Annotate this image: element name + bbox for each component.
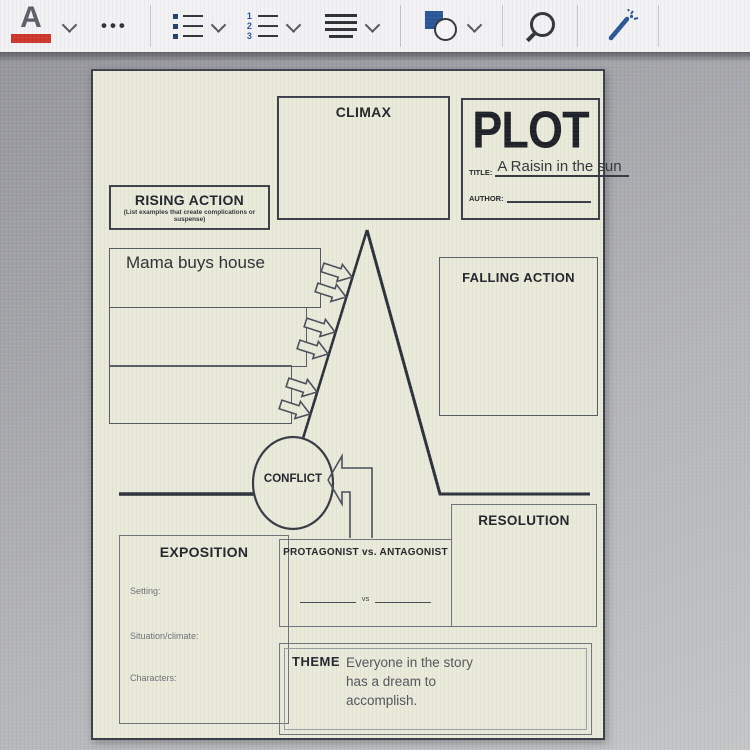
conflict-label: CONFLICT: [253, 473, 333, 485]
toolbar-divider: [577, 5, 578, 47]
search-button[interactable]: [525, 10, 555, 42]
plot-title: PLOT: [470, 105, 592, 155]
rising-action-sublabel: (List examples that create complications…: [111, 209, 268, 223]
toolbar-divider: [400, 5, 401, 47]
line-spacing-icon: [325, 14, 357, 17]
exposition-situation-label: Situation/climate:: [130, 631, 199, 641]
chevron-down-icon[interactable]: [211, 17, 227, 33]
toolbar-shadow: [0, 52, 750, 62]
toolbar-divider: [150, 5, 151, 47]
resolution-box[interactable]: RESOLUTION: [451, 504, 597, 627]
numbered-list-button[interactable]: 1 2 3: [246, 13, 278, 39]
rising-action-entry-1[interactable]: Mama buys house: [109, 248, 321, 308]
toolbar-divider: [502, 5, 503, 47]
author-field-label: AUTHOR:: [469, 194, 504, 203]
document-canvas[interactable]: CLIMAX PLOT TITLE: A Raisin in the sun A…: [0, 52, 750, 750]
chevron-down-icon[interactable]: [286, 17, 302, 33]
font-color-icon: A: [20, 3, 42, 33]
falling-action-box[interactable]: FALLING ACTION: [439, 257, 598, 416]
exposition-label: EXPOSITION: [120, 544, 288, 560]
magic-wand-button[interactable]: [604, 9, 640, 43]
font-color-swatch: [11, 34, 51, 43]
author-field-blank[interactable]: [507, 189, 591, 203]
plot-diagram-worksheet[interactable]: CLIMAX PLOT TITLE: A Raisin in the sun A…: [91, 69, 605, 740]
exposition-characters-label: Characters:: [130, 673, 177, 683]
theme-box[interactable]: THEME Everyone in the story has a dream …: [279, 643, 592, 735]
shapes-button[interactable]: [425, 10, 459, 42]
rising-action-label: RISING ACTION: [111, 192, 268, 208]
protagonist-blank[interactable]: [300, 592, 356, 603]
more-options-button[interactable]: •••: [75, 16, 128, 36]
chevron-down-icon[interactable]: [467, 17, 483, 33]
app-window: A ••• 1 2 3: [0, 0, 750, 750]
plot-header-box: PLOT TITLE: A Raisin in the sun AUTHOR:: [461, 98, 600, 220]
chevron-down-icon[interactable]: [365, 17, 381, 33]
toolbar-divider: [658, 5, 659, 47]
rising-action-box: RISING ACTION (List examples that create…: [109, 185, 270, 230]
title-field-value[interactable]: A Raisin in the sun: [495, 158, 629, 177]
toolbar: A ••• 1 2 3: [0, 0, 750, 52]
theme-label: THEME: [292, 654, 340, 669]
line-spacing-button[interactable]: [325, 14, 357, 38]
climax-label: CLIMAX: [279, 104, 448, 120]
rising-action-entry-3[interactable]: [109, 365, 292, 424]
ellipsis-icon: •••: [101, 16, 128, 36]
shape-circle-icon: [434, 18, 457, 41]
numbered-list-icon: 1: [246, 13, 278, 19]
antagonist-blank[interactable]: [375, 592, 431, 603]
font-color-button[interactable]: A: [8, 3, 54, 43]
protagonist-antagonist-box[interactable]: PROTAGONIST vs. ANTAGONIST vs: [279, 539, 452, 627]
resolution-label: RESOLUTION: [452, 513, 596, 528]
conflict-arrow-icon: [328, 456, 372, 538]
bullet-list-icon: [173, 13, 203, 19]
title-field-label: TITLE:: [469, 168, 492, 177]
magic-wand-icon: [604, 9, 640, 43]
vs-label: vs: [362, 594, 370, 603]
rising-action-entry-2[interactable]: [109, 307, 307, 367]
exposition-setting-label: Setting:: [130, 586, 161, 596]
falling-action-label: FALLING ACTION: [440, 270, 597, 285]
exposition-box[interactable]: EXPOSITION Setting: Situation/climate: C…: [119, 535, 289, 724]
bullet-list-button[interactable]: [173, 13, 203, 39]
climax-box: CLIMAX: [277, 96, 450, 220]
protagonist-antagonist-label: PROTAGONIST vs. ANTAGONIST: [280, 547, 451, 558]
theme-value[interactable]: Everyone in the story has a dream to acc…: [346, 653, 498, 710]
rising-action-entry-text: Mama buys house: [110, 249, 320, 273]
